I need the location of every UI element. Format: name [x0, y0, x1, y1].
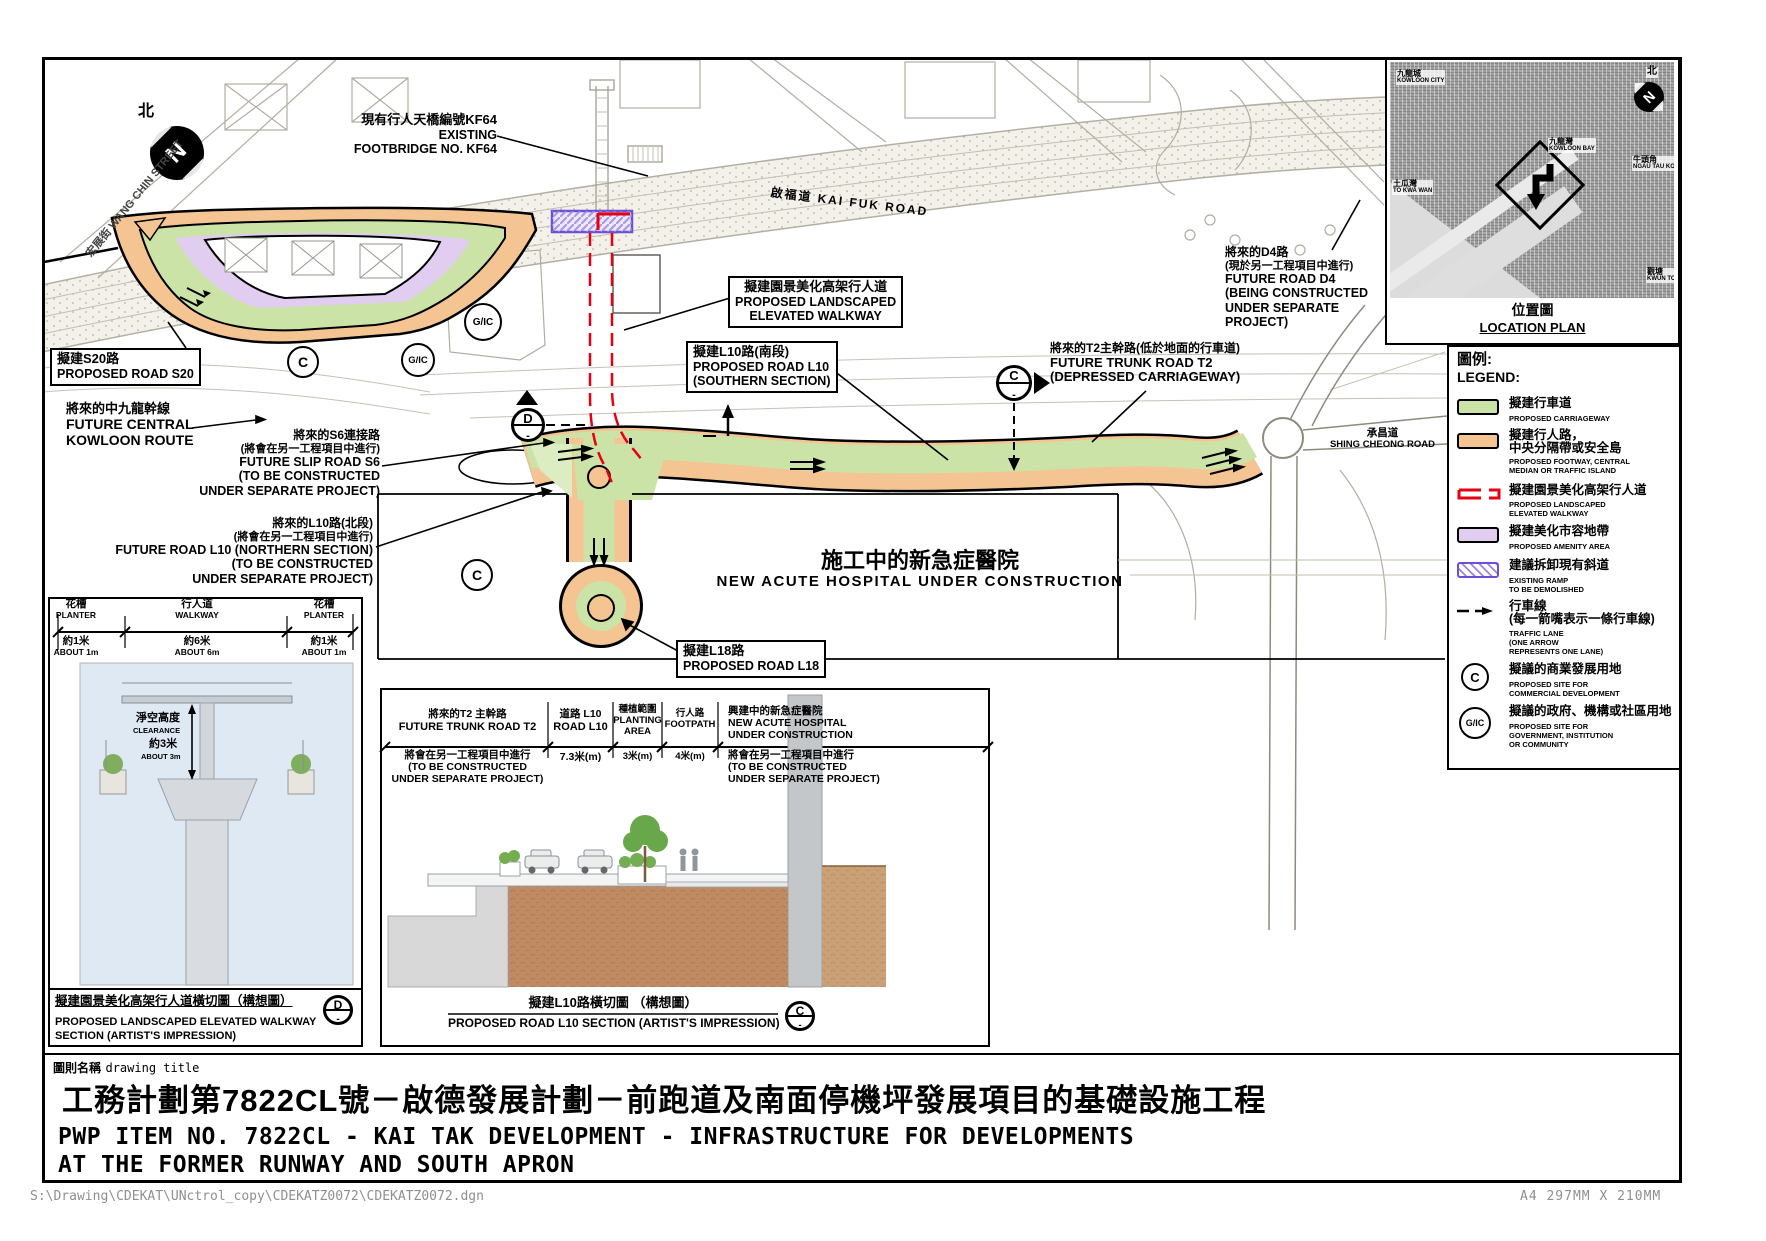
map-label-zh: 觀塘	[1647, 268, 1674, 276]
road-l18-bulb	[559, 564, 643, 648]
location-plan: 九龍城KOWLOON CITY 九龍灣KOWLOON BAY 土瓜灣TO KWA…	[1385, 57, 1680, 345]
drawing-title-zh: 工務計劃第7822CL號－啟德發展計劃－前跑道及南面停機坪發展項目的基礎設施工程	[62, 1083, 1266, 1118]
walkway-clearance-en: CLEARANCE	[133, 727, 180, 736]
roadsec-col-t2: 將來的T2 主幹路 FUTURE TRUNK ROAD T2	[390, 709, 545, 734]
roadsec-col-l10-dim: 7.3米(m)	[548, 752, 613, 764]
location-plan-caption-en: LOCATION PLAN	[1387, 321, 1678, 336]
legend-item-label: 擬議的商業發展用地	[1509, 663, 1622, 677]
label-road-l18: 擬建L18路 PROPOSED ROAD L18	[676, 640, 826, 678]
label-slip-road-s6: 將來的S6連接路 (將會在另一工程項目中進行) FUTURE SLIP ROAD…	[199, 429, 380, 498]
junction-island	[588, 466, 610, 488]
walkway-caption-zh: 擬建園景美化高架行人道橫切圖（構想圖）	[55, 994, 293, 1008]
legend-item-sub: PROPOSED CARRIAGEWAY	[1509, 414, 1610, 423]
marker-gic: G/IC	[401, 343, 435, 377]
legend-item-sub: GOVERNMENT, INSTITUTION	[1509, 731, 1613, 740]
walkway-clearance-dim-en: ABOUT 3m	[141, 753, 181, 762]
legend-gic-icon: G/IC	[1459, 707, 1491, 739]
roadsec-col-t2-note: 將會在另一工程項目中進行 (TO BE CONSTRUCTED UNDER SE…	[390, 750, 545, 786]
label-proposed-road-s20: 擬建S20路 PROPOSED ROAD S20	[50, 348, 201, 386]
title-block-divider	[42, 1053, 1682, 1055]
walkway-dim-walkway: 行人道 WALKWAY	[147, 599, 247, 621]
map-north-arrow-icon: N	[1634, 82, 1664, 112]
legend-swatch-ramp-demolish	[1457, 562, 1499, 578]
drawing-title-label: 圖則名稱 drawing title	[53, 1059, 199, 1077]
map-label-zh: 牛頭角	[1633, 156, 1674, 164]
legend-swatch-carriageway	[1457, 399, 1499, 415]
legend-item-sub: PROPOSED FOOTWAY, CENTRAL	[1509, 457, 1630, 466]
map-label-zh: 土瓜灣	[1393, 180, 1432, 188]
legend-item-label: 擬建美化市容地帶	[1509, 525, 1609, 539]
map-label-en: KWUN TONG	[1647, 276, 1674, 282]
file-path: S:\Drawing\CDEKAT\UNctrol_copy\CDEKATZ00…	[30, 1190, 484, 1205]
walkway-section-box	[48, 597, 363, 1047]
drawing-title-en2: AT THE FORMER RUNWAY AND SOUTH APRON	[58, 1152, 575, 1178]
roadsec-col-hospital-note: 將會在另一工程項目中進行 (TO BE CONSTRUCTED UNDER SE…	[728, 750, 880, 786]
location-plan-map: 九龍城KOWLOON CITY 九龍灣KOWLOON BAY 土瓜灣TO KWA…	[1390, 62, 1674, 298]
roadsec-caption-zh: 擬建L10路橫切圖 （構想圖）	[448, 996, 778, 1011]
legend-item-sub: TO BE DEMOLISHED	[1509, 585, 1584, 594]
legend-item-sub: MEDIAN OR TRAFFIC ISLAND	[1509, 466, 1616, 475]
drawing-title-en1: PWP ITEM NO. 7822CL - KAI TAK DEVELOPMEN…	[58, 1124, 1134, 1150]
roadsec-col-planting: 種植範圍 PLANTING AREA	[613, 705, 662, 737]
marker-commercial: C	[461, 559, 493, 591]
legend-title-en: LEGEND:	[1457, 370, 1520, 386]
label-road-l10-north: 將來的L10路(北段) (將會在另一工程項目中進行) FUTURE ROAD L…	[115, 517, 373, 586]
legend-item-sub: (ONE ARROW	[1509, 638, 1559, 647]
map-label-en: TO KWA WAN	[1393, 188, 1432, 194]
walkway-dim-planter-right: 花槽 PLANTER	[293, 599, 355, 621]
walkway-section-caption: 擬建園景美化高架行人道橫切圖（構想圖） PROPOSED LANDSCAPED …	[48, 988, 363, 1047]
legend-item-label: 擬議的政府、機構或社區用地	[1509, 705, 1672, 719]
legend-item-sub: PROPOSED AMENITY AREA	[1509, 542, 1610, 551]
legend-item-sub: COMMERCIAL DEVELOPMENT	[1509, 689, 1620, 698]
legend-swatch-footway	[1457, 433, 1499, 449]
legend-item-sub: PROPOSED LANDSCAPED	[1509, 500, 1606, 509]
legend-item-sub: TRAFFIC LANE	[1509, 629, 1564, 638]
junction-patch	[572, 444, 668, 500]
legend-swatch-amenity	[1457, 527, 1499, 543]
label-road-d4: 將來的D4路 (現於另一工程項目中進行) FUTURE ROAD D4 (BEI…	[1225, 246, 1368, 329]
walkway-dim-planter-left: 花槽 PLANTER	[45, 599, 107, 621]
label-road-l10-south: 擬建L10路(南段) PROPOSED ROAD L10 (SOUTHERN S…	[686, 341, 838, 393]
legend-item-label: 中央分隔帶或安全島	[1509, 442, 1622, 456]
label-landscaped-walkway: 擬建園景美化高架行人道 PROPOSED LANDSCAPED ELEVATED…	[728, 276, 903, 328]
map-label-en: KOWLOON BAY	[1549, 146, 1595, 152]
legend-item-label: 擬建園景美化高架行人道	[1509, 484, 1647, 498]
road-section-box	[380, 688, 990, 1047]
label-shing-cheong-road: 承昌道 SHING CHEONG ROAD	[1320, 428, 1445, 451]
roadsec-col-planting-dim: 3米(m)	[613, 752, 662, 763]
legend-item-sub: ELEVATED WALKWAY	[1509, 509, 1588, 518]
legend-swatch-elevated-walkway	[1455, 487, 1503, 503]
legend-commercial-icon: C	[1461, 663, 1489, 691]
existing-ramp-to-be-demolished	[552, 211, 632, 232]
marker-gic: G/IC	[464, 303, 502, 341]
map-label-en: NGAU TAU KOK	[1633, 164, 1674, 170]
legend-item-sub: REPRESENTS ONE LANE)	[1509, 647, 1603, 656]
legend: 圖例: LEGEND: 擬建行車道 PROPOSED CARRIAGEWAY 擬…	[1447, 345, 1682, 770]
map-label-zh: 九龍城	[1397, 70, 1444, 78]
walkway-dim-planter-left-value: 約1米 ABOUT 1m	[45, 636, 107, 658]
legend-item-label: (每一箭嘴表示一條行車線)	[1509, 613, 1655, 627]
label-central-kowloon-route: 將來的中九龍幹線 FUTURE CENTRAL KOWLOON ROUTE	[66, 402, 194, 449]
walkway-dim-planter-right-value: 約1米 ABOUT 1m	[293, 636, 355, 658]
roadsec-col-footpath-dim: 4米(m)	[662, 752, 718, 763]
section-d-symbol: D -	[511, 408, 545, 442]
walkway-clearance-zh: 淨空高度	[136, 712, 180, 725]
map-north-label: 北	[1646, 67, 1658, 78]
walkway-caption-en2: SECTION (ARTIST'S IMPRESSION)	[55, 1030, 236, 1043]
legend-item-sub: EXISTING RAMP	[1509, 576, 1568, 585]
legend-item-sub: PROPOSED SITE FOR	[1509, 680, 1588, 689]
section-c-symbol: C -	[996, 365, 1032, 401]
site-arrow-icon	[1516, 158, 1566, 214]
label-hospital: 施工中的新急症醫院 NEW ACUTE HOSPITAL UNDER CONST…	[700, 548, 1140, 590]
roadsec-col-l10: 道路 L10 ROAD L10	[548, 709, 613, 734]
walkway-dim-walkway-value: 約6米 ABOUT 6m	[147, 636, 247, 658]
section-c-arrow-icon	[1034, 372, 1050, 394]
map-label-zh: 九龍灣	[1549, 138, 1595, 146]
legend-traffic-lane-icon	[1455, 605, 1501, 617]
walkway-clearance-dim-zh: 約3米	[149, 738, 177, 751]
plan-north-label: 北	[138, 103, 154, 121]
roadsec-caption-marker: C -	[785, 1001, 815, 1031]
paper-size: A4 297MM X 210MM	[1520, 1190, 1661, 1205]
map-label-en: KOWLOON CITY	[1397, 78, 1444, 84]
legend-item-sub: OR COMMUNITY	[1509, 740, 1569, 749]
walkway-caption-marker: D -	[323, 995, 353, 1025]
walkway-caption-en1: PROPOSED LANDSCAPED ELEVATED WALKWAY	[55, 1016, 316, 1029]
legend-item-label: 擬建行車道	[1509, 397, 1572, 411]
roadsec-col-footpath: 行人路 FOOTPATH	[662, 709, 718, 731]
existing-building	[613, 255, 660, 313]
section-d-arrow-icon	[516, 390, 538, 405]
label-footbridge-kf64: 現有行人天橋編號KF64 EXISTING FOOTBRIDGE NO. KF6…	[354, 113, 497, 156]
legend-item-label: 建議拆卸現有斜道	[1509, 559, 1609, 573]
label-trunk-road-t2: 將來的T2主幹路(低於地面的行車道) FUTURE TRUNK ROAD T2 …	[1050, 342, 1240, 385]
roadsec-caption-en: PROPOSED ROAD L10 SECTION (ARTIST'S IMPR…	[448, 1017, 778, 1031]
roadsec-col-hospital: 興建中的新急症醫院 NEW ACUTE HOSPITAL UNDER CONST…	[728, 706, 853, 742]
marker-commercial: C	[287, 346, 319, 378]
location-plan-caption-zh: 位置圖	[1387, 303, 1678, 319]
drawing-sheet: 九龍城KOWLOON CITY 九龍灣KOWLOON BAY 土瓜灣TO KWA…	[0, 0, 1766, 1241]
legend-item-sub: PROPOSED SITE FOR	[1509, 722, 1588, 731]
legend-title-zh: 圖例:	[1457, 351, 1492, 368]
